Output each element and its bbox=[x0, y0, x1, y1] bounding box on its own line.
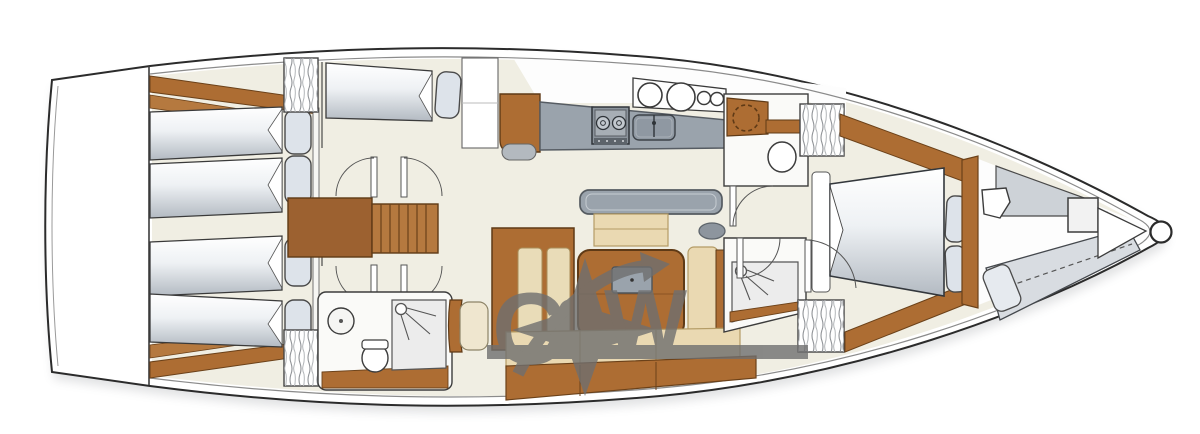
nav-seat bbox=[449, 300, 489, 352]
windlass-box bbox=[1068, 198, 1098, 232]
oven-drawer bbox=[502, 144, 536, 160]
ottoman bbox=[594, 214, 668, 246]
porthole bbox=[711, 93, 724, 106]
watermark-letter-c: C bbox=[492, 272, 566, 386]
pillow bbox=[285, 156, 311, 204]
pillow bbox=[285, 110, 311, 154]
yacht-deck-plan: & C W bbox=[0, 0, 1200, 434]
faucet-icon bbox=[652, 121, 656, 125]
berth-mattress bbox=[150, 158, 282, 218]
vanity-wood bbox=[727, 98, 768, 136]
yacht-deck-plan-page: & C W bbox=[0, 0, 1200, 434]
door-leaf bbox=[371, 157, 377, 197]
engine-box bbox=[288, 198, 372, 257]
toilet bbox=[768, 142, 796, 172]
pillow bbox=[434, 71, 461, 119]
berth-mattress bbox=[150, 107, 282, 160]
master-door-leaf bbox=[805, 240, 811, 292]
berth-mattress bbox=[150, 236, 282, 296]
aft-head bbox=[318, 292, 452, 390]
door-leaf bbox=[737, 238, 743, 278]
hanging-locker-aft-starboard bbox=[284, 330, 318, 386]
vanity-shelf bbox=[766, 120, 804, 133]
shower-head-icon bbox=[396, 304, 407, 315]
aft-bulkhead-wall bbox=[313, 108, 319, 212]
wardrobe-port bbox=[800, 104, 844, 156]
bed-foot-platform bbox=[812, 172, 830, 292]
porthole bbox=[638, 83, 662, 107]
berth-mattress bbox=[326, 63, 432, 121]
toilet-tank bbox=[362, 340, 388, 349]
stair-treads bbox=[372, 204, 438, 253]
berth-mattress bbox=[150, 294, 282, 347]
pouf-stool bbox=[699, 223, 725, 239]
burner bbox=[613, 117, 626, 130]
sink bbox=[633, 115, 675, 140]
wardrobe-starboard bbox=[798, 300, 844, 352]
hanging-locker-aft-port bbox=[284, 58, 318, 112]
watermark-letter-w: W bbox=[604, 271, 687, 370]
bow-roller bbox=[1151, 222, 1172, 243]
seat-cushion bbox=[460, 302, 488, 350]
forepeak-bulkhead-wood bbox=[962, 156, 978, 308]
door-leaf bbox=[401, 157, 407, 197]
burner bbox=[597, 117, 610, 130]
porthole bbox=[698, 92, 711, 105]
companionway-stairs bbox=[288, 198, 438, 257]
stove bbox=[592, 107, 629, 145]
island-double-bed bbox=[830, 168, 944, 296]
fridge-cabinet bbox=[500, 94, 540, 152]
porthole bbox=[667, 83, 695, 111]
